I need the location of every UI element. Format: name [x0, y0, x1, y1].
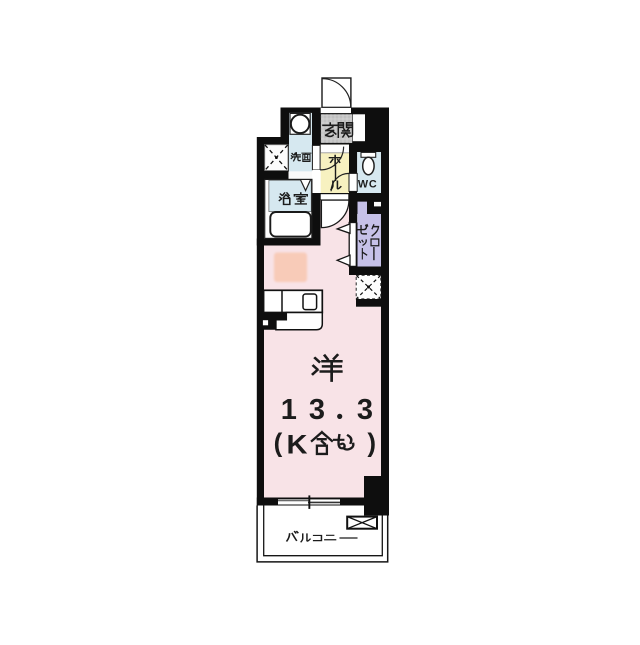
svg-text:): ) [367, 427, 376, 457]
svg-text:WC: WC [358, 179, 378, 191]
svg-text:1: 1 [281, 394, 297, 426]
svg-text:3: 3 [357, 394, 373, 426]
svg-text:3: 3 [309, 394, 325, 426]
svg-text:(: ( [274, 427, 283, 457]
svg-text:K: K [287, 430, 309, 460]
